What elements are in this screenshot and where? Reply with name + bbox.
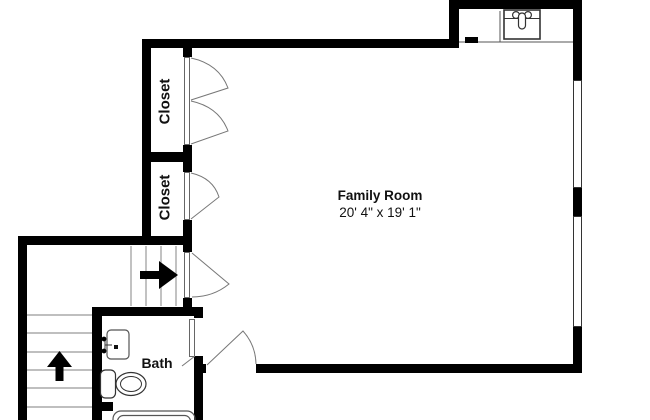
toilet-icon xyxy=(101,370,147,398)
stairs-upper xyxy=(131,246,176,306)
wall-bath-right-b xyxy=(194,356,203,420)
wall-top-right-segment xyxy=(449,0,582,9)
arrow-up-icon xyxy=(47,351,72,381)
wall-closet-left xyxy=(142,39,151,245)
window xyxy=(573,216,582,327)
vanity-sink-icon xyxy=(102,330,129,359)
wall-right-middle xyxy=(573,187,582,217)
floor-plan: Family Room 20' 4" x 19' 1" Closet Close… xyxy=(0,0,650,420)
bath-label: Bath xyxy=(132,355,182,371)
closet-bottom-door-swing-icon xyxy=(191,173,219,219)
closet-bottom-label: Closet xyxy=(157,163,174,233)
wall-bath-bottom-stub xyxy=(97,402,113,411)
closet-top-door-leaf xyxy=(184,57,190,145)
stairs-lower xyxy=(27,315,92,407)
sink-icon xyxy=(504,10,540,39)
counter xyxy=(459,11,573,42)
closet-top-door-swing-icon xyxy=(191,58,228,144)
closet-top-label: Closet xyxy=(157,67,174,137)
window xyxy=(573,80,582,188)
family-room-label: Family Room xyxy=(300,188,460,203)
wall-bath-right-a xyxy=(194,307,203,318)
bathtub-icon xyxy=(113,411,195,420)
closet-bottom-door-leaf xyxy=(184,172,190,220)
wall-closet-right-b xyxy=(183,145,192,172)
family-room-door-swing-icon xyxy=(207,331,256,365)
wall-hall-top xyxy=(18,236,192,245)
family-room-dimensions: 20' 4" x 19' 1" xyxy=(300,205,460,220)
bath-door-leaf xyxy=(189,319,195,357)
hall-door-leaf xyxy=(184,252,190,298)
counter-marker xyxy=(465,37,478,43)
hall-door-swing-icon xyxy=(192,253,229,297)
wall-bath-top xyxy=(92,307,202,316)
arrow-right-icon xyxy=(140,261,178,289)
wall-closet-right-a xyxy=(183,39,192,57)
wall-bottom xyxy=(256,364,582,373)
wall-right-upper xyxy=(573,0,582,81)
wall-left-outer xyxy=(18,236,27,420)
